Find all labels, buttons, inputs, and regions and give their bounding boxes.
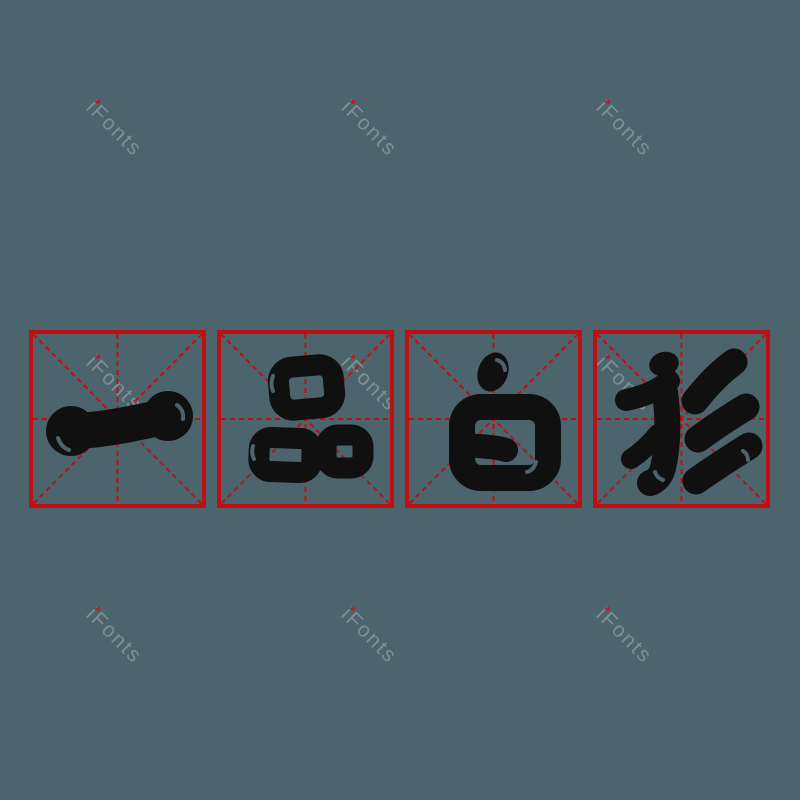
watermark-text: iFonts <box>592 603 657 668</box>
ifonts-watermark: iFonts <box>81 96 147 162</box>
char-cell-yi <box>29 330 206 508</box>
char-cell-bai <box>405 330 582 508</box>
calligraphy-grid-row <box>29 330 770 508</box>
watermark-text: iFonts <box>82 96 147 161</box>
ifonts-watermark: iFonts <box>336 96 402 162</box>
watermark-text: iFonts <box>82 603 147 668</box>
glyph-pin <box>221 334 390 504</box>
watermark-text: iFonts <box>592 96 657 161</box>
ifonts-watermark: iFonts <box>591 603 657 669</box>
ifonts-watermark: iFonts <box>81 603 147 669</box>
ifonts-watermark: iFonts <box>591 96 657 162</box>
watermark-text: iFonts <box>337 603 402 668</box>
glyph-bai <box>409 334 578 504</box>
char-cell-pin <box>217 330 394 508</box>
char-cell-shan <box>593 330 770 508</box>
ifonts-watermark: iFonts <box>336 603 402 669</box>
glyph-shan <box>597 334 766 504</box>
watermark-text: iFonts <box>337 96 402 161</box>
glyph-yi <box>33 334 202 504</box>
